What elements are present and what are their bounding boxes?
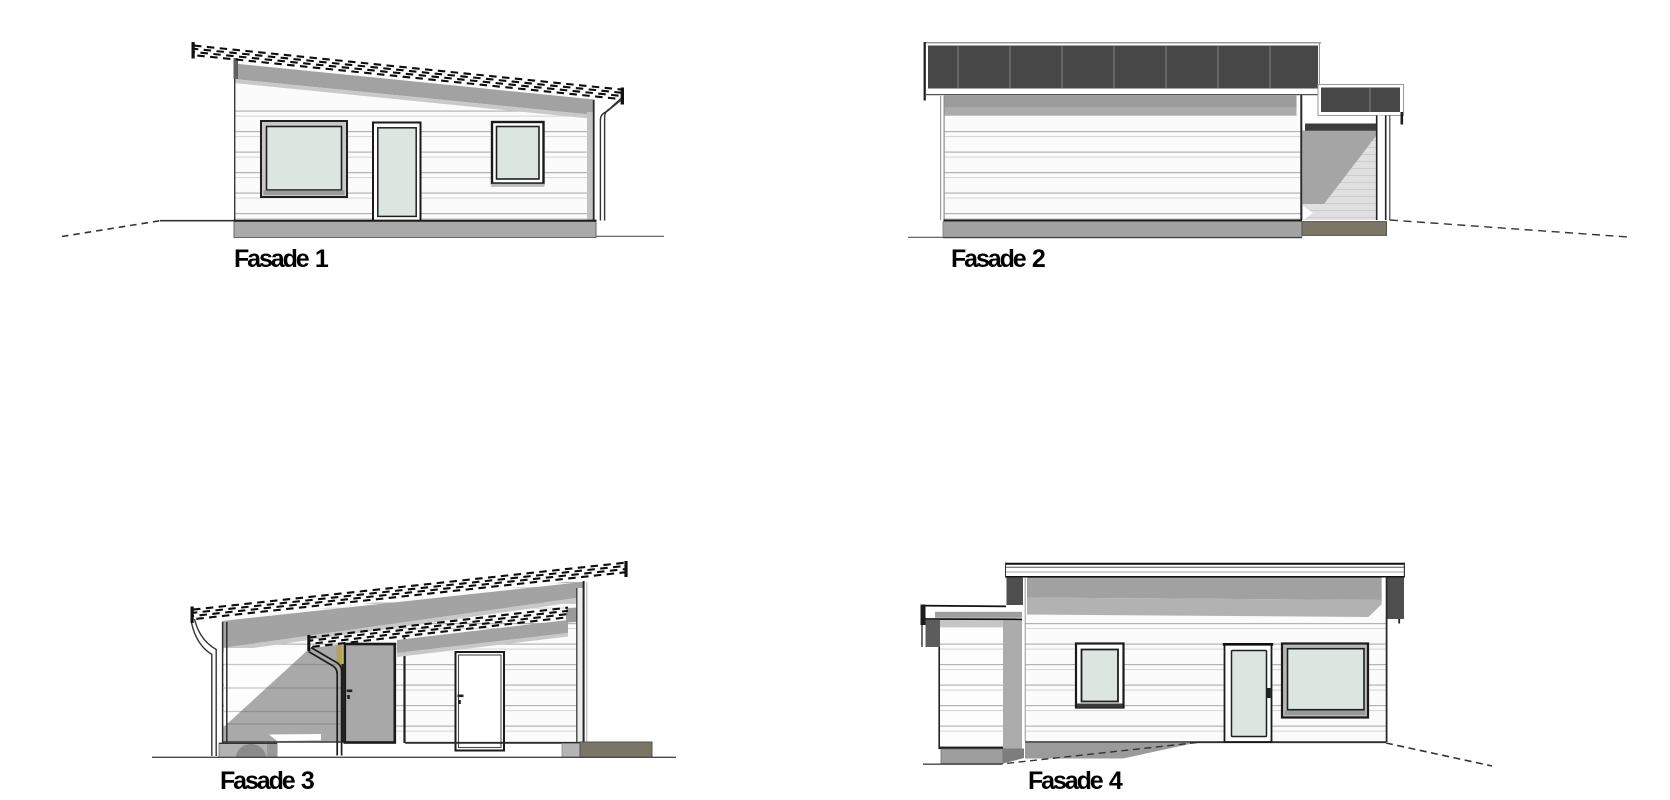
svg-text:Fasade 1: Fasade 1 [234,245,329,273]
svg-text:Fasade 4: Fasade 4 [1028,767,1123,795]
svg-text:Fasade 3: Fasade 3 [220,767,314,795]
svg-text:Fasade 2: Fasade 2 [951,245,1045,273]
